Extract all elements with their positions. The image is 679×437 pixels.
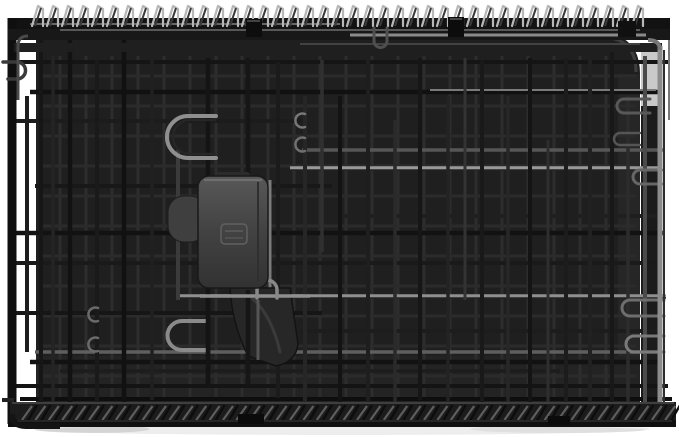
crate-illustration xyxy=(0,0,679,437)
bottom-rail-shape xyxy=(548,416,570,425)
top-frame-shape xyxy=(618,21,636,37)
top-frame-shape xyxy=(448,17,464,37)
product-photo-dog-crate xyxy=(0,0,679,437)
plastic-floor-pan-shape xyxy=(19,108,26,308)
bottom-rail-shape xyxy=(238,414,264,424)
bottom-rail xyxy=(2,400,679,427)
